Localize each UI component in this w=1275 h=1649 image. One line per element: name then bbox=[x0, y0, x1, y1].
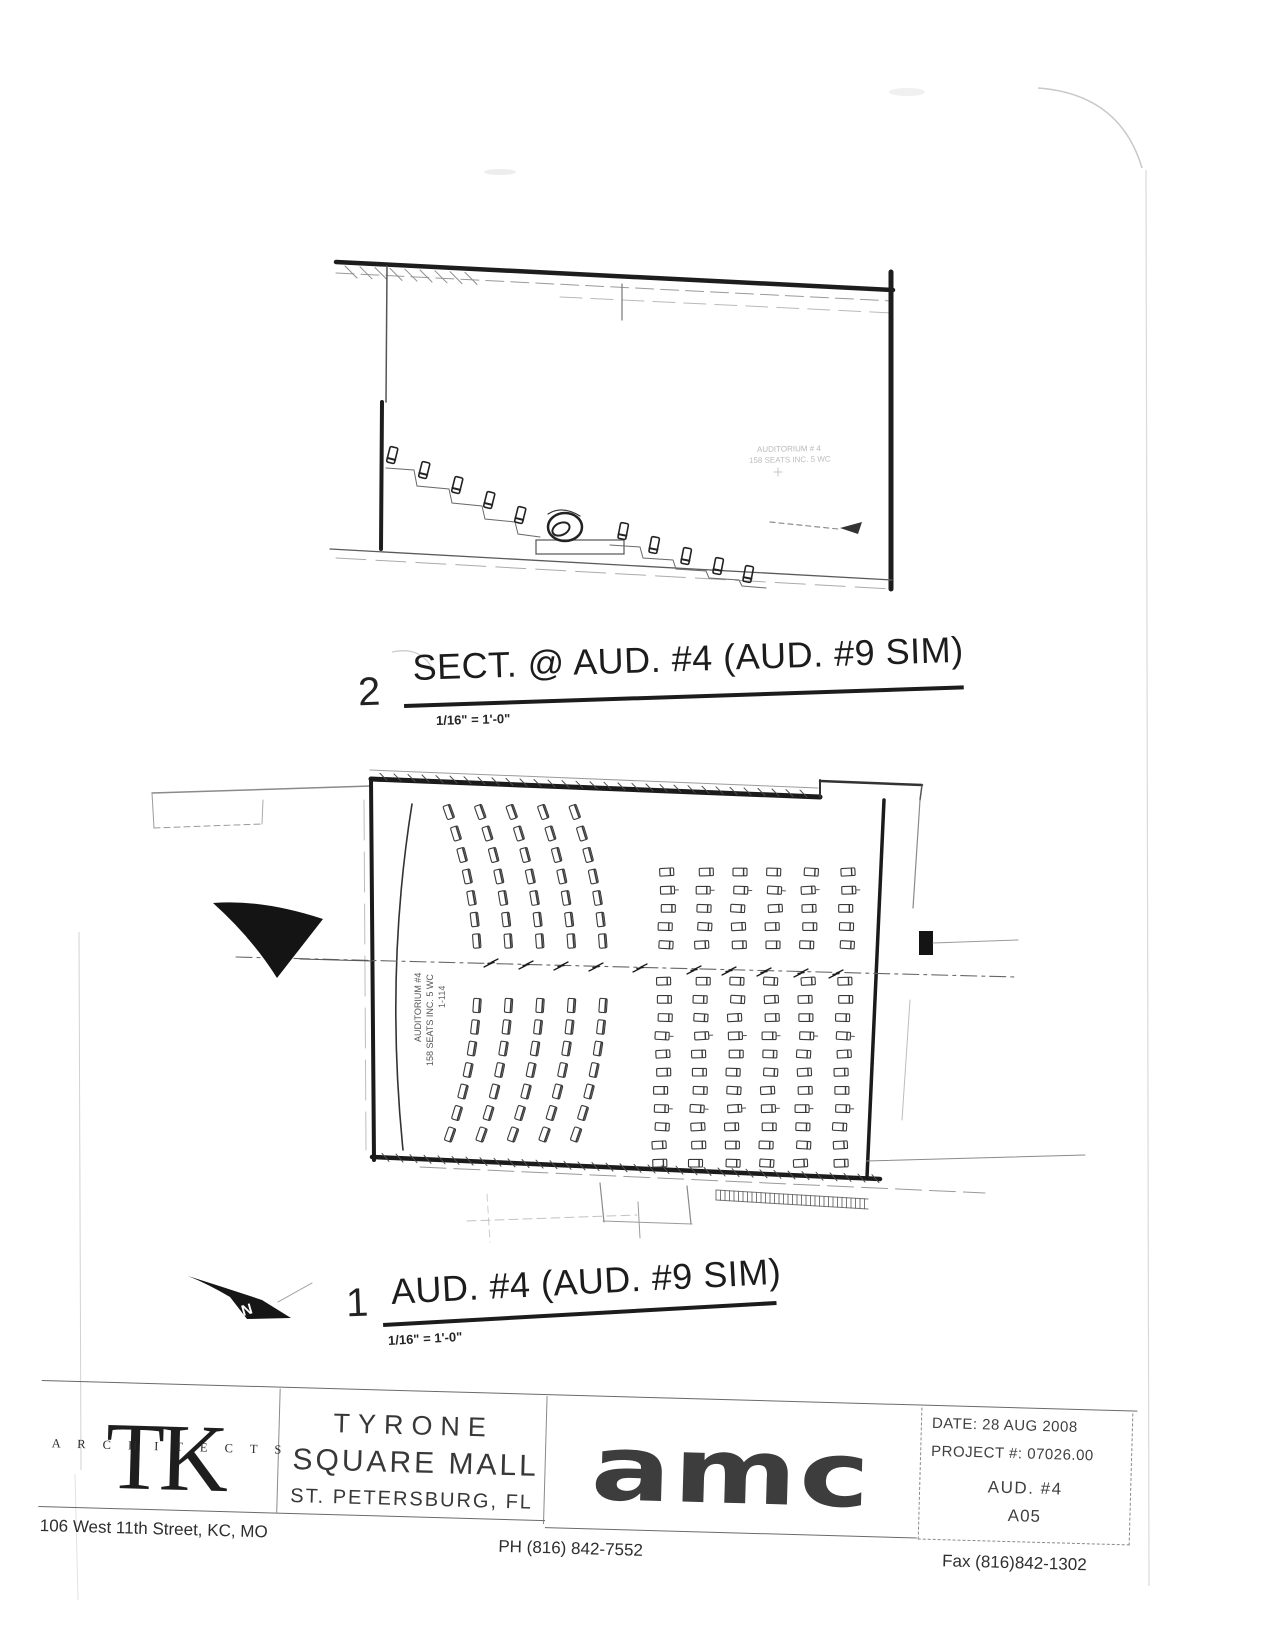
sheet-title: AUD. #4 bbox=[920, 1476, 1130, 1502]
plan-drawing: AUDITORIUM #4 158 SEATS INC. 5 WC 1-114 … bbox=[152, 770, 1085, 1320]
section-annotation-line2: 158 SEATS INC. 5 WC bbox=[749, 455, 831, 465]
room-label-line3: 1-114 bbox=[437, 986, 447, 1008]
project-name-cell: TYRONE SQUARE MALL ST. PETERSBURG, FL bbox=[280, 1389, 545, 1520]
amc-logo: amc bbox=[590, 1423, 873, 1521]
screen-arc bbox=[396, 804, 412, 1150]
north-arrow: N bbox=[188, 1276, 312, 1320]
plan-view-number: 1 bbox=[345, 1283, 369, 1324]
section-leader-arrow bbox=[840, 522, 862, 534]
section-cut-marker-right bbox=[919, 931, 933, 955]
room-label-line1: AUDITORIUM #4 bbox=[413, 973, 423, 1042]
section-cut-marker-left bbox=[213, 902, 323, 978]
hatched-strip bbox=[716, 1190, 865, 1209]
project-name-line2: SQUARE MALL bbox=[275, 1443, 556, 1485]
sheet-number: A05 bbox=[919, 1504, 1129, 1530]
project-name-line3: ST. PETERSBURG, FL bbox=[280, 1485, 543, 1515]
architect-phone: PH (816) 842-7552 bbox=[498, 1537, 643, 1561]
architect-address: 106 West 11th Street, KC, MO bbox=[39, 1516, 268, 1542]
scan-artifacts bbox=[75, 88, 1149, 1600]
client-logo-cell: amc bbox=[544, 1396, 919, 1536]
sheet-date: DATE: 28 AUG 2008 bbox=[932, 1415, 1078, 1436]
room-label-line2: 158 SEATS INC. 5 WC bbox=[425, 974, 435, 1066]
sheet-info-cell: DATE: 28 AUG 2008 PROJECT #: 07026.00 AU… bbox=[918, 1408, 1134, 1546]
architect-logo-cell: TK A R C H I T E C T S bbox=[52, 1382, 277, 1512]
sheet-project-number: PROJECT #: 07026.00 bbox=[931, 1443, 1094, 1465]
section-drawing: AUDITORIUM # 4 158 SEATS INC. 5 WC bbox=[330, 262, 893, 589]
section-view-scale: 1/16" = 1'-0" bbox=[436, 711, 511, 728]
project-name-line1: TYRONE bbox=[282, 1407, 545, 1445]
section-annotation-line1: AUDITORIUM # 4 bbox=[757, 444, 822, 454]
title-block: TK A R C H I T E C T S TYRONE SQUARE MAL… bbox=[35, 1374, 1142, 1649]
architect-initials: TK bbox=[52, 1406, 277, 1508]
architect-fax: Fax (816)842-1302 bbox=[942, 1551, 1087, 1575]
straight-seat-rows bbox=[652, 868, 860, 1168]
curved-seat-rows bbox=[443, 804, 607, 1142]
section-view-number: 2 bbox=[357, 672, 381, 713]
